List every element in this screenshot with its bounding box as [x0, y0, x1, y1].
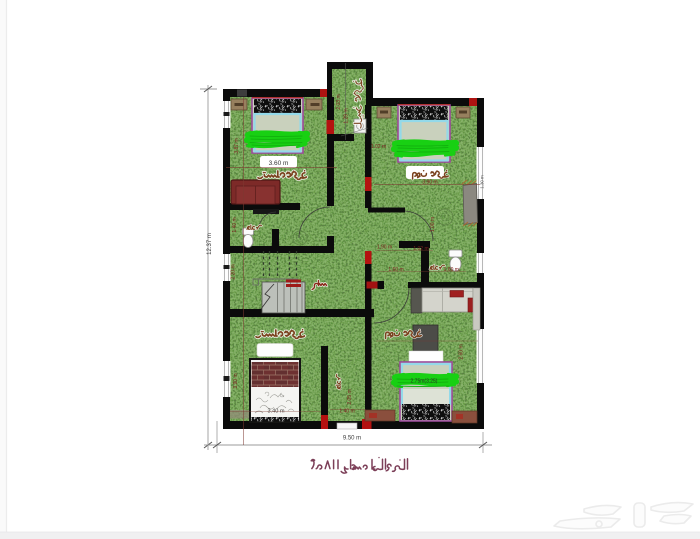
svg-text:3.90 m: 3.90 m [233, 373, 239, 388]
svg-text:1.29 m: 1.29 m [344, 108, 350, 123]
svg-text:1.60 m: 1.60 m [388, 267, 403, 273]
svg-text:3.87 m: 3.87 m [234, 138, 240, 153]
svg-text:9.50 m: 9.50 m [343, 436, 361, 442]
svg-text:1.60 m.: 1.60 m. [444, 267, 461, 273]
svg-text:2.20 m: 2.20 m [231, 264, 237, 279]
svg-text:3.60 m: 3.60 m [269, 160, 289, 167]
svg-text:12.37 m: 12.37 m [207, 233, 213, 255]
svg-text:1.02 m: 1.02 m [371, 144, 386, 150]
svg-text:3.90 m: 3.90 m [422, 180, 437, 186]
svg-text:1.30 m: 1.30 m [480, 175, 485, 189]
svg-text:1.40 m: 1.40 m [339, 409, 354, 415]
svg-text:1.02 m: 1.02 m [413, 246, 428, 252]
svg-text:2.03 m: 2.03 m [336, 94, 342, 109]
svg-text:1.90 m: 1.90 m [377, 245, 392, 251]
svg-text:2.05 m: 2.05 m [347, 389, 353, 404]
svg-text:1.40 m: 1.40 m [232, 217, 238, 232]
svg-text:2.60 m: 2.60 m [459, 344, 465, 359]
svg-text:2.75m(3.25): 2.75m(3.25) [411, 379, 438, 385]
svg-text:1.00 m: 1.00 m [430, 217, 436, 232]
